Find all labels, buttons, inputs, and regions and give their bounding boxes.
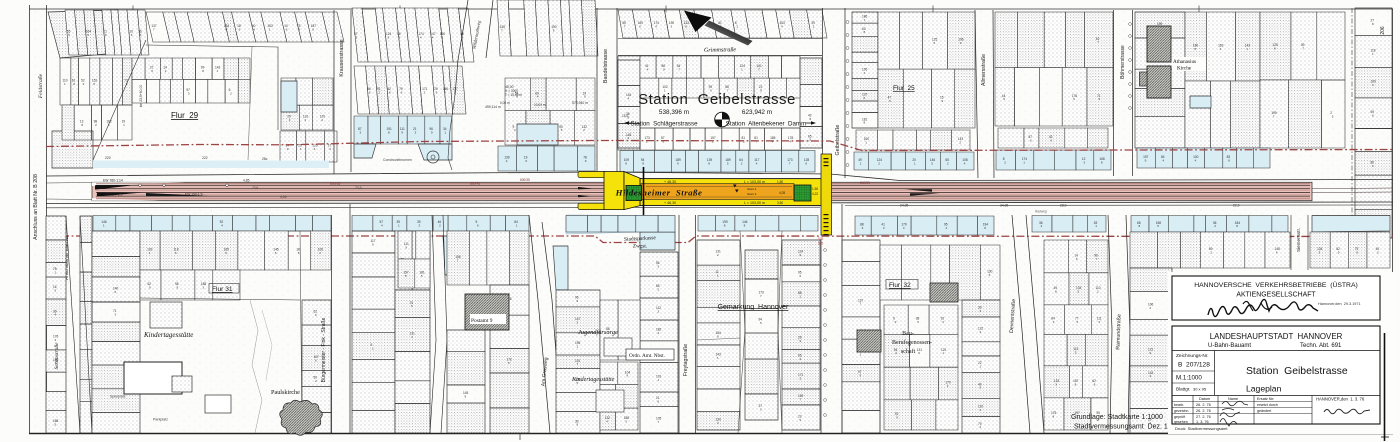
svg-text:Constructebrunnen: Constructebrunnen [383,158,412,162]
svg-text:Gemarkung Hannover: Gemarkung Hannover [718,304,789,311]
svg-text:LANDESHAUPTSTADT HANNOVER: LANDESHAUPTSTADT HANNOVER [1210,332,1343,341]
svg-text:Postamt 9: Postamt 9 [471,318,493,324]
svg-text:15,0: 15,0 [622,114,628,118]
svg-text:Freytagstraße: Freytagstraße [683,344,689,376]
svg-text:1,50: 1,50 [777,180,783,184]
svg-text:4,85: 4,85 [243,179,250,183]
svg-text:800/45: 800/45 [470,182,480,186]
svg-text:Spielplatz: Spielplatz [110,395,126,399]
svg-text:Flur 31: Flur 31 [212,286,233,293]
svg-text:1,50: 1,50 [812,187,818,191]
svg-text:Feldstraße: Feldstraße [37,73,44,99]
svg-text:Geibelstraße: Geibelstraße [835,125,841,156]
svg-text:schaft: schaft [901,348,916,355]
svg-text:Krausenstrasse: Krausenstrasse [339,39,345,76]
svg-text:Jugendfürsorge: Jugendfürsorge [578,329,618,336]
svg-text:28,0: 28,0 [1060,204,1067,208]
svg-text:gezeichn.: gezeichn. [1174,409,1189,413]
svg-text:625: 625 [818,242,824,246]
svg-text:Allmersstraße: Allmersstraße [981,54,987,86]
svg-text:B 207/128: B 207/128 [1178,362,1210,369]
svg-text:Lageplan: Lageplan [1246,384,1282,394]
svg-text:km 23,5+60,00: km 23,5+60,00 [139,85,143,108]
svg-text:23,6: 23,6 [355,186,362,190]
svg-text:538,396 m: 538,396 m [659,109,689,116]
svg-text:Station Schlägerstrasse: Station Schlägerstrasse [630,121,698,128]
svg-text:Kirche: Kirche [1177,66,1192,72]
svg-text:Zwgst.: Zwgst. [633,244,647,250]
svg-text:623,942 m: 623,942 m [742,109,772,116]
svg-text:Anschluss an Blatt Nr. B 208: Anschluss an Blatt Nr. B 208 [33,174,39,240]
svg-text:26. 2. 76: 26. 2. 76 [1196,409,1211,413]
svg-text:Berufsgenossen-: Berufsgenossen- [892,339,932,346]
svg-text:L = 103,00 m: L = 103,00 m [744,201,765,205]
svg-text:1. 3. 76: 1. 3. 76 [1196,420,1209,424]
svg-text:Kindertagesstätte: Kindertagesstätte [143,331,193,339]
svg-text:22,9: 22,9 [1233,204,1240,208]
svg-text:4,05: 4,05 [779,191,785,195]
svg-text:Sextrostraße: Sextrostraße [53,342,60,370]
svg-text:0,00 m: 0,00 m [500,101,510,105]
svg-text:600/35: 600/35 [520,178,530,182]
svg-text:Grundlage: Stadtkarte 1:1000: Grundlage: Stadtkarte 1:1000 [1071,414,1163,421]
svg-text:Techn. Abt. 691: Techn. Abt. 691 [1300,343,1342,349]
svg-text:573,940 m: 573,940 m [572,101,588,105]
svg-text:499,114 m: 499,114 m [485,105,501,109]
svg-text:geändert: geändert [1257,409,1271,413]
svg-text:Raimundstraße: Raimundstraße [1115,314,1122,350]
svg-text:Stadtvermessungsamt Dez. 1974: Stadtvermessungsamt Dez. 1974 [1074,424,1180,431]
svg-text:Flur 29: Flur 29 [171,111,199,120]
svg-text:Paulskirche: Paulskirche [271,389,300,396]
svg-text:535: 535 [818,237,824,241]
svg-text:T = 15,00 m: T = 15,00 m [505,93,522,97]
svg-text:Datum: Datum [1199,397,1210,401]
svg-text:Kindertagesstätte: Kindertagesstätte [571,377,615,383]
svg-text:geprüft: geprüft [1174,415,1185,419]
svg-text:Flur 32: Flur 32 [889,282,911,289]
svg-text:600/35: 600/35 [330,182,340,186]
svg-text:Ordn. Amt. Nbst.: Ordn. Amt. Nbst. [629,353,665,359]
svg-text:Zeichnungs-Nr.: Zeichnungs-Nr. [1176,353,1209,359]
svg-text:Station Altenbekener Damm: Station Altenbekener Damm [726,121,806,128]
svg-text:Siemensstr.: Siemensstr. [1296,228,1301,252]
svg-text:HANNOVER,den 1. 3. 76: HANNOVER,den 1. 3. 76 [1316,397,1365,402]
svg-text:3,50: 3,50 [777,201,783,205]
svg-text:Radweg: Radweg [1035,210,1047,214]
svg-text:Böhmerstrasse: Böhmerstrasse [1120,45,1126,79]
svg-text:gesehen: gesehen [1174,420,1188,424]
svg-text:Athanasius: Athanasius [1173,59,1196,65]
svg-text:EW 760-1:14: EW 760-1:14 [103,179,123,183]
svg-text:bearb.: bearb. [1174,403,1184,407]
svg-text:26. 2. 76: 26. 2. 76 [1196,403,1211,407]
svg-text:Hildesheimer Straße: Hildesheimer Straße [615,188,703,198]
svg-text:U-Bahn-Bauamt: U-Bahn-Bauamt [1208,343,1251,349]
svg-text:34,05: 34,05 [1000,204,1008,208]
svg-text:Parkplatz: Parkplatz [153,418,168,422]
svg-text:Gleis 3: Gleis 3 [747,192,757,196]
svg-text:EW 190-1:9: EW 190-1:9 [105,192,123,196]
svg-text:Blattgr.: Blattgr. [1176,387,1190,392]
svg-text:EW 190-1:9: EW 190-1:9 [185,192,203,196]
svg-text:L = 103,00 m: L = 103,00 m [744,180,765,184]
svg-text:Druck Stadtvermessungsamt: Druck Stadtvermessungsamt [1175,426,1228,431]
svg-text:Grimmstraße: Grimmstraße [704,46,736,54]
svg-text:4,05: 4,05 [280,195,287,199]
svg-text:+ 46,30: + 46,30 [664,180,676,184]
svg-text:Gleis 4: Gleis 4 [747,187,757,191]
svg-text:ersetzt durch: ersetzt durch [1257,403,1278,407]
svg-text:30 x 95: 30 x 95 [1193,387,1207,392]
svg-text:4,22: 4,22 [812,192,818,196]
svg-text:800/55: 800/55 [860,181,870,185]
svg-text:Bandelstrasse: Bandelstrasse [603,49,609,83]
svg-text:Bürgermeister - Fink - Straße: Bürgermeister - Fink - Straße [321,317,327,382]
svg-text:+ 46,30: + 46,30 [664,201,676,205]
svg-text:Name: Name [1228,397,1238,401]
svg-text:AKTIENGESELLSCHAFT: AKTIENGESELLSCHAFT [1236,292,1316,299]
svg-text:13,00 m: 13,00 m [534,103,546,107]
svg-text:24,05: 24,05 [900,204,908,208]
svg-text:Hannover,den 29.3.1971: Hannover,den 29.3.1971 [1318,302,1361,306]
svg-text:Station Geibelstrasse: Station Geibelstrasse [1246,366,1348,377]
svg-text:Station Geibelstrasse: Station Geibelstrasse [638,91,796,108]
svg-text:HANNOVERSCHE VERKEHRSBETRIEBE: HANNOVERSCHE VERKEHRSBETRIEBE (ÜSTRA) [1194,281,1358,289]
svg-text:27. 2. 76: 27. 2. 76 [1196,415,1211,419]
svg-text:M.1:1000: M.1:1000 [1176,375,1202,382]
svg-text:Bau-: Bau- [902,331,914,337]
svg-text:Flur 25: Flur 25 [893,85,915,92]
svg-text:Ersatz für:: Ersatz für: [1257,397,1274,401]
svg-text:23,6: 23,6 [252,186,258,190]
